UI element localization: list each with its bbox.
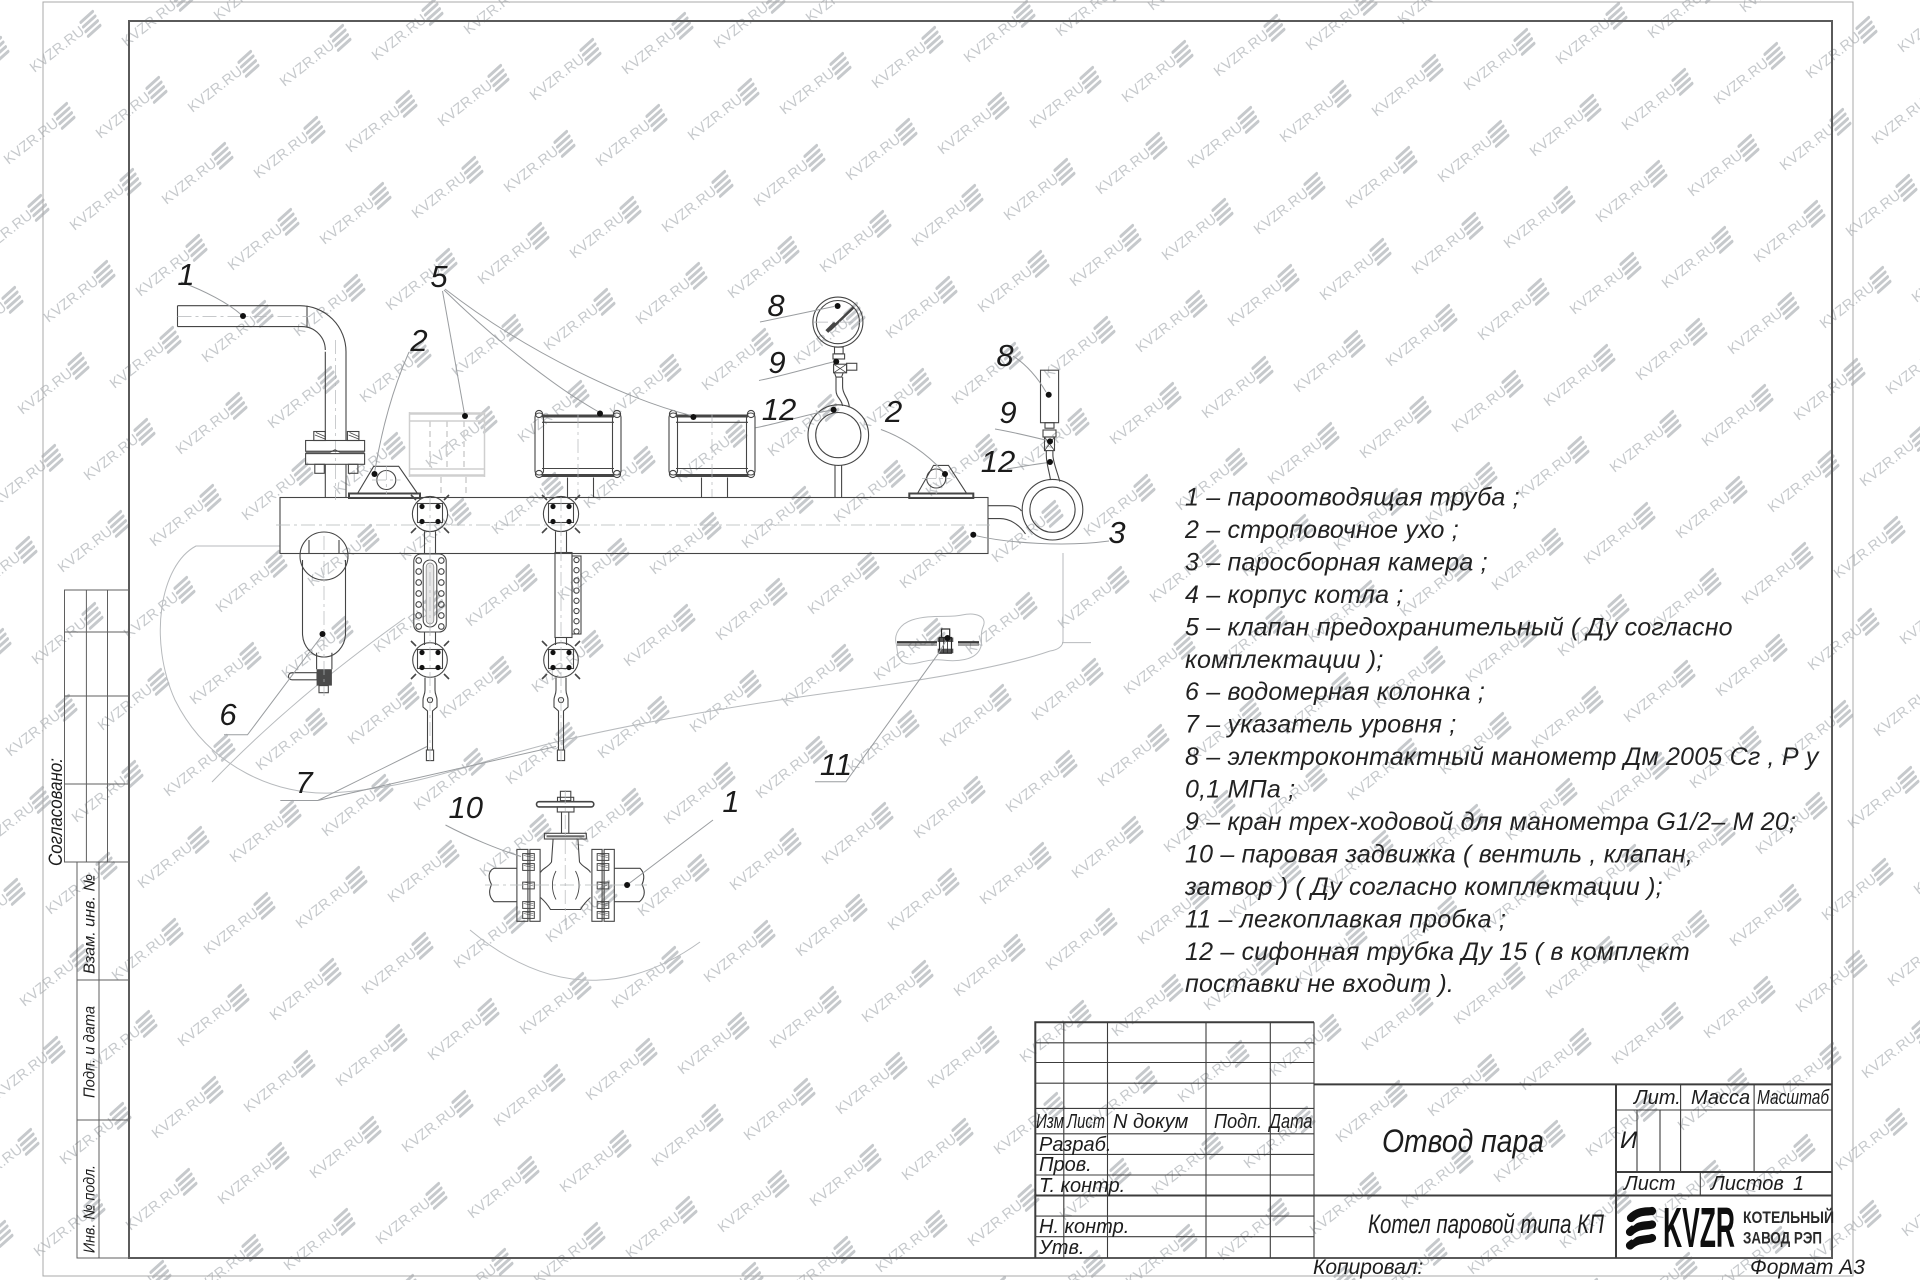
svg-text:8: 8 [996,338,1014,373]
svg-text:2: 2 [884,394,902,429]
svg-text:9: 9 [768,345,785,380]
svg-text:Пров.: Пров. [1039,1154,1092,1176]
svg-text:1: 1 [722,784,739,819]
svg-text:И: И [1620,1127,1638,1154]
svg-text:Отвод пара: Отвод пара [1382,1123,1544,1159]
svg-text:Взам. инв. №: Взам. инв. № [82,874,99,974]
svg-text:Утв.: Утв. [1038,1237,1084,1259]
svg-text:12: 12 [981,444,1015,479]
svg-text:Согласовано:: Согласовано: [46,758,67,866]
svg-text:ЗАВОД РЭП: ЗАВОД РЭП [1743,1229,1822,1248]
svg-text:1: 1 [1793,1173,1804,1195]
svg-text:2: 2 [409,323,427,358]
svg-text:Лит.: Лит. [1632,1087,1681,1109]
svg-text:6: 6 [219,697,237,732]
svg-text:Т. контр.: Т. контр. [1039,1175,1125,1197]
svg-text:10 – паровая задвижка ( вент: 10 – паровая задвижка ( вентиль , клапан… [1185,841,1693,869]
svg-text:7 – указатель уровня ;: 7 – указатель уровня ; [1185,711,1456,739]
svg-text:7: 7 [295,765,314,800]
svg-text:6 – водомерная колонка ;: 6 – водомерная колонка ; [1185,678,1485,706]
svg-text:10: 10 [449,790,483,825]
svg-text:Инв. № подл.: Инв. № подл. [82,1165,99,1253]
svg-text:Котел паровой типа КП: Котел паровой типа КП [1368,1209,1604,1239]
svg-text:Лист: Лист [1066,1111,1105,1133]
svg-text:8: 8 [767,288,785,323]
svg-text:КОТЕЛЬНЫЙ: КОТЕЛЬНЫЙ [1743,1208,1834,1227]
svg-text:9 – кран трех-ходовой для ман: 9 – кран трех-ходовой для манометра G1/2… [1185,808,1796,836]
svg-text:KVZR: KVZR [1663,1196,1735,1260]
svg-text:0,1 МПа ;: 0,1 МПа ; [1185,776,1295,804]
svg-text:Дата: Дата [1268,1111,1313,1133]
svg-text:2 – строповочное ухо ;: 2 – строповочное ухо ; [1184,516,1459,544]
svg-text:Подп. и дата: Подп. и дата [82,1006,99,1098]
svg-text:комплектации );: комплектации ); [1185,646,1383,674]
svg-text:N докум: N докум [1113,1111,1189,1133]
svg-text:Н. контр.: Н. контр. [1039,1216,1129,1238]
svg-text:5 – клапан предохранительный: 5 – клапан предохранительный ( Ду соглас… [1185,613,1733,641]
svg-text:поставки не входит ).: поставки не входит ). [1185,970,1454,998]
svg-text:Листов: Листов [1709,1173,1784,1195]
svg-text:3: 3 [1108,515,1125,550]
svg-text:1: 1 [177,257,194,292]
svg-text:3 – паросборная камера ;: 3 – паросборная камера ; [1185,548,1488,576]
svg-text:Формат А3: Формат А3 [1750,1256,1865,1279]
svg-text:4 – корпус котла ;: 4 – корпус котла ; [1185,581,1404,609]
svg-text:8 – электроконтактный манометр: 8 – электроконтактный манометр Дм 2005 С… [1185,743,1820,771]
svg-text:Разраб.: Разраб. [1039,1134,1111,1156]
svg-text:11: 11 [820,747,852,782]
svg-text:Лист: Лист [1622,1173,1676,1195]
svg-text:Масштаб: Масштаб [1757,1087,1830,1109]
svg-text:12 – сифонная трубка Ду 15 (: 12 – сифонная трубка Ду 15 ( в комплект [1185,938,1690,966]
svg-text:9: 9 [999,395,1016,430]
svg-text:Копировал:: Копировал: [1313,1256,1423,1279]
svg-text:затвор ) ( Ду согласно комплек: затвор ) ( Ду согласно комплектации ); [1184,873,1663,901]
svg-text:Подп.: Подп. [1214,1111,1262,1133]
svg-text:1 – пароотводящая труба ;: 1 – пароотводящая труба ; [1185,484,1520,512]
svg-text:Изм: Изм [1036,1111,1064,1133]
svg-text:5: 5 [430,259,448,294]
svg-text:Масса: Масса [1691,1087,1750,1109]
svg-text:11 – легкоплавкая пробка ;: 11 – легкоплавкая пробка ; [1185,905,1506,933]
svg-text:12: 12 [762,392,796,427]
